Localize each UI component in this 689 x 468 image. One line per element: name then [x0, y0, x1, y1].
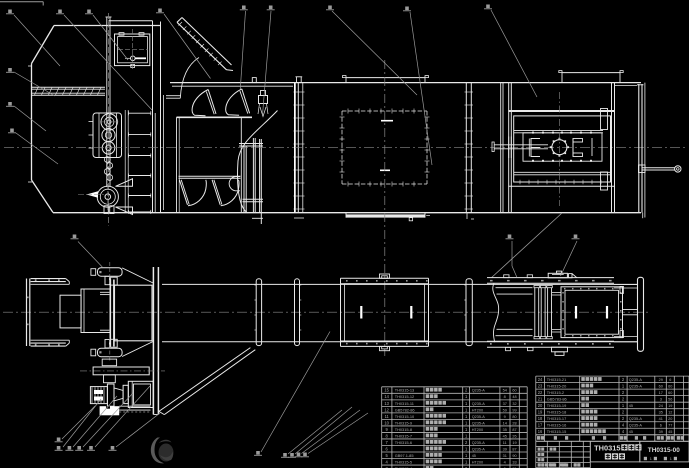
- svg-text:22: 22: [538, 390, 543, 395]
- svg-text:TH0315-00: TH0315-00: [648, 447, 680, 454]
- svg-text:Q235-A: Q235-A: [472, 389, 486, 393]
- svg-text:TH0315-15: TH0315-15: [547, 429, 566, 434]
- svg-text:32: 32: [512, 402, 516, 406]
- svg-text:HT200: HT200: [472, 428, 483, 432]
- svg-text:12: 12: [384, 407, 389, 412]
- svg-text:TH0315-19: TH0315-19: [547, 403, 566, 408]
- svg-text:TH0315-13: TH0315-13: [395, 388, 414, 393]
- svg-text:20: 20: [668, 417, 672, 421]
- svg-text:3: 3: [660, 398, 662, 402]
- svg-text:Q235-A: Q235-A: [472, 447, 486, 451]
- svg-text:45: 45: [472, 454, 476, 458]
- svg-text:59: 59: [503, 408, 507, 412]
- svg-text:TH0315-18: TH0315-18: [547, 410, 566, 415]
- svg-text:Q235-A: Q235-A: [472, 415, 486, 419]
- svg-text:60: 60: [512, 389, 516, 393]
- svg-text:21: 21: [538, 397, 543, 402]
- svg-text:33: 33: [512, 460, 516, 464]
- svg-text:41: 41: [659, 417, 663, 421]
- svg-text:29: 29: [659, 378, 663, 382]
- svg-text:HT200: HT200: [472, 460, 483, 464]
- svg-text:16: 16: [538, 429, 543, 434]
- svg-text:15: 15: [384, 388, 389, 393]
- svg-text:90: 90: [512, 454, 516, 458]
- svg-text:6: 6: [669, 378, 671, 382]
- svg-text:Q235-A: Q235-A: [629, 378, 643, 382]
- svg-text:9: 9: [504, 415, 506, 419]
- svg-text:19: 19: [668, 404, 672, 408]
- svg-text:28: 28: [512, 421, 516, 425]
- svg-text:GB5782-86: GB5782-86: [395, 407, 415, 412]
- svg-text:Q235-A: Q235-A: [629, 424, 643, 428]
- svg-text:1: 1: [670, 457, 672, 461]
- svg-text:GB5783-86: GB5783-86: [547, 397, 567, 402]
- svg-text:TH0315-17: TH0315-17: [547, 416, 566, 421]
- svg-text:19: 19: [538, 410, 543, 415]
- svg-text:Q235-A: Q235-A: [472, 441, 486, 445]
- svg-text:TH0315-5: TH0315-5: [395, 459, 412, 464]
- svg-text:87: 87: [512, 447, 516, 451]
- svg-text:TH0315-21: TH0315-21: [547, 377, 566, 382]
- svg-text:99: 99: [512, 408, 516, 412]
- svg-text:26: 26: [512, 434, 516, 438]
- svg-text:87: 87: [512, 428, 516, 432]
- svg-text:11: 11: [503, 441, 507, 445]
- svg-text:45: 45: [503, 434, 507, 438]
- svg-text:54: 54: [503, 389, 507, 393]
- svg-text:12: 12: [668, 411, 672, 415]
- svg-text:TH0315-12: TH0315-12: [395, 394, 414, 399]
- svg-text:TH0315-8: TH0315-8: [395, 427, 412, 432]
- svg-text:TH0315-11: TH0315-11: [395, 401, 414, 406]
- svg-text:TH0315-7: TH0315-7: [395, 433, 412, 438]
- svg-text:39: 39: [503, 447, 507, 451]
- svg-text:8: 8: [504, 395, 506, 399]
- svg-text:TH0315-16: TH0315-16: [547, 423, 566, 428]
- svg-text:TH0315-10: TH0315-10: [395, 414, 415, 419]
- svg-text:4: 4: [504, 460, 506, 464]
- svg-text:TH0315-20: TH0315-20: [547, 384, 567, 389]
- svg-text:GB97.1-85: GB97.1-85: [395, 453, 414, 458]
- svg-text:Q235-A: Q235-A: [629, 385, 643, 389]
- svg-text:35: 35: [503, 428, 507, 432]
- svg-text:13: 13: [384, 401, 389, 406]
- svg-text:TH0315-6: TH0315-6: [395, 440, 412, 445]
- svg-text:19: 19: [512, 441, 516, 445]
- svg-text:37: 37: [503, 402, 507, 406]
- svg-text:Q235-A: Q235-A: [629, 417, 643, 421]
- svg-text:39: 39: [659, 430, 663, 434]
- svg-text:45: 45: [668, 430, 672, 434]
- svg-text:77: 77: [668, 424, 672, 428]
- svg-text:23: 23: [538, 384, 543, 389]
- svg-text:24: 24: [538, 377, 543, 382]
- svg-text:18: 18: [538, 416, 543, 421]
- svg-text:HT200: HT200: [472, 408, 483, 412]
- svg-text:24: 24: [659, 404, 663, 408]
- svg-text:60: 60: [668, 385, 672, 389]
- svg-text:20: 20: [538, 403, 543, 408]
- svg-text:56: 56: [668, 398, 672, 402]
- svg-text:10: 10: [384, 420, 389, 425]
- svg-text:17: 17: [659, 391, 663, 395]
- svg-text:17: 17: [538, 423, 543, 428]
- svg-text:60: 60: [668, 391, 672, 395]
- svg-text:60: 60: [659, 385, 663, 389]
- svg-text:14: 14: [503, 421, 507, 425]
- svg-text:TH0315-9: TH0315-9: [395, 420, 412, 425]
- svg-text:TH0315-2: TH0315-2: [547, 390, 564, 395]
- svg-text:TH0315: TH0315: [594, 444, 620, 453]
- svg-text:6: 6: [660, 424, 662, 428]
- svg-text:45: 45: [629, 404, 633, 408]
- svg-text:45: 45: [629, 430, 633, 434]
- svg-text:80: 80: [512, 415, 516, 419]
- svg-text:Q235-A: Q235-A: [472, 421, 486, 425]
- svg-text:11: 11: [385, 414, 390, 419]
- svg-text:31: 31: [503, 454, 507, 458]
- svg-text:Q235-A: Q235-A: [472, 402, 486, 406]
- svg-text:14: 14: [384, 394, 389, 399]
- svg-text:48: 48: [512, 395, 516, 399]
- svg-text:1: 1: [650, 457, 652, 461]
- svg-text:35: 35: [659, 411, 663, 415]
